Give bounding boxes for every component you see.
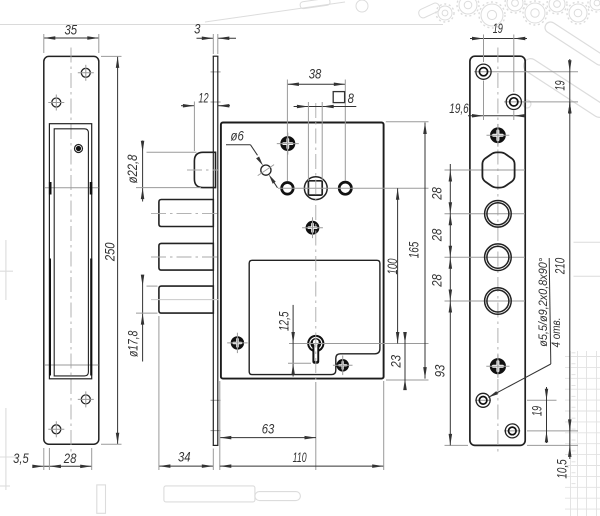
svg-text:ø17,8: ø17,8	[125, 330, 141, 357]
svg-text:38: 38	[309, 65, 322, 81]
svg-text:12: 12	[198, 90, 208, 106]
svg-text:ø22,8: ø22,8	[124, 154, 140, 183]
svg-text:165: 165	[406, 242, 422, 259]
svg-text:19: 19	[551, 80, 567, 90]
svg-text:35: 35	[65, 22, 78, 38]
svg-text:3: 3	[194, 20, 200, 36]
svg-text:28: 28	[429, 274, 445, 288]
svg-text:12,5: 12,5	[275, 311, 291, 331]
svg-text:19: 19	[493, 20, 503, 36]
svg-text:8: 8	[348, 90, 354, 106]
svg-text:93: 93	[432, 365, 448, 378]
svg-text:28: 28	[63, 450, 77, 466]
svg-text:28: 28	[429, 229, 445, 243]
svg-text:250: 250	[101, 242, 117, 262]
svg-text:4 отв.: 4 отв.	[549, 318, 563, 348]
svg-text:63: 63	[262, 421, 275, 437]
svg-text:10,5: 10,5	[554, 459, 570, 478]
svg-text:3,5: 3,5	[13, 450, 29, 466]
svg-text:100: 100	[384, 258, 400, 274]
svg-text:23: 23	[387, 355, 403, 369]
svg-text:19: 19	[529, 406, 545, 416]
svg-text:19,6: 19,6	[449, 100, 469, 116]
svg-text:28: 28	[429, 187, 445, 201]
svg-text:210: 210	[552, 258, 568, 275]
svg-text:110: 110	[293, 449, 307, 465]
svg-text:34: 34	[178, 449, 191, 465]
svg-text:ø6: ø6	[231, 128, 244, 144]
